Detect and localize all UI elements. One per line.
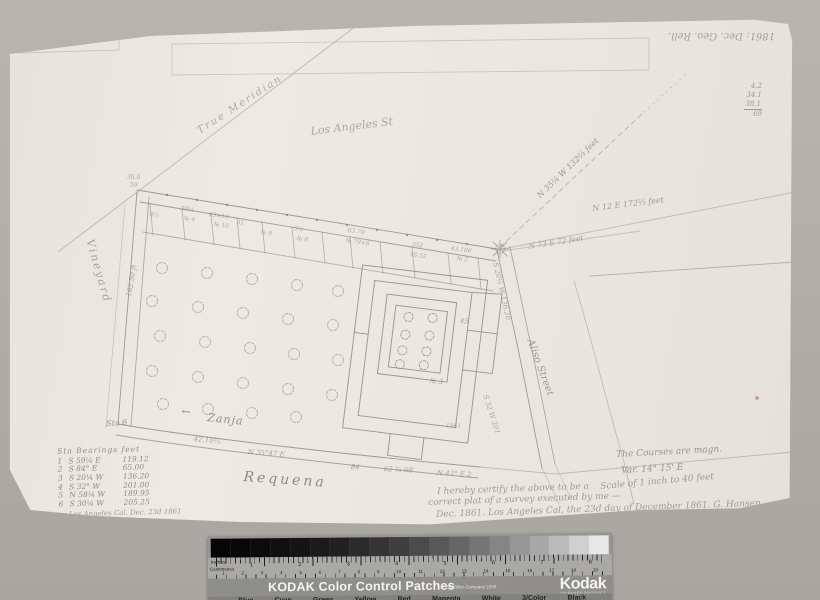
grayscale-patch	[430, 537, 450, 556]
grayscale-patch	[390, 537, 410, 556]
building-label: 1861	[446, 423, 462, 430]
photo-background: 1861: Dec. 1861: Dec. Geo. Rell. 4.2 34.…	[0, 0, 820, 600]
inches-label: Inches	[211, 560, 226, 566]
red-speck	[755, 396, 759, 400]
bearing-table-rows: 1S 59¼ E119.122S 84° E65.003S 20¼ W136.2…	[57, 454, 181, 509]
inch-number: 7	[540, 560, 543, 566]
grayscale-patch	[529, 536, 549, 555]
grayscale-patch	[450, 536, 470, 555]
grayscale-patch	[270, 538, 290, 557]
zanja-label: Zanja	[207, 412, 244, 427]
building-label: 45	[459, 318, 468, 326]
bearing-cell: 205.25	[123, 498, 161, 508]
grayscale-patch	[589, 535, 609, 554]
kodak-color-strip: Inches 12345678 123456789101112131415161…	[208, 533, 613, 600]
bearing-row: 6S 30¼ W205.25	[58, 497, 181, 509]
sum-line: 69	[728, 110, 762, 119]
inch-number: 6	[492, 560, 495, 566]
zanja-arrow: ←	[181, 406, 191, 418]
inch-number: 5	[443, 561, 446, 567]
color-patch-label: Yellow	[355, 596, 377, 600]
sum-line: 38.1	[744, 100, 762, 110]
corner-note: 59	[130, 183, 138, 189]
lot-label: 5¼	[293, 226, 303, 233]
corner-station-mark	[491, 240, 509, 258]
sum-line: 4.2	[728, 82, 762, 91]
bearing-table: Sta Bearings feet 1S 59¼ E119.122S 84° E…	[57, 444, 182, 519]
building-label: № 3	[429, 378, 443, 386]
grayscale-patch	[330, 538, 350, 557]
centimetres-label: Centimetres	[210, 567, 234, 572]
grayscale-patch	[370, 537, 390, 556]
grayscale-patch	[509, 536, 529, 555]
date-note-top-left: 1861: Dec.	[40, 27, 116, 42]
color-patch-label: Black	[567, 594, 586, 600]
kodak-copyright: © The Tiffen Company 2000	[440, 584, 496, 589]
grayscale-patch	[549, 536, 569, 555]
grayscale-patch	[310, 538, 330, 557]
inch-number: 4	[395, 561, 398, 567]
grayscale-patch	[350, 537, 370, 556]
lot-label: 31	[236, 220, 244, 227]
color-patch-label: Magenta	[432, 596, 461, 600]
inch-number: 2	[298, 562, 301, 568]
inch-number: 3	[347, 562, 350, 568]
lot-label: 8½	[149, 212, 159, 219]
color-patch-label: Red	[398, 596, 411, 600]
pencil-sum-column: 4.2 34.1 38.1 69	[728, 82, 762, 119]
courtyard-trees	[395, 310, 438, 373]
grayscale-patch	[231, 538, 251, 557]
map-sheet: 1861: Dec. 1861: Dec. Geo. Rell. 4.2 34.…	[0, 0, 820, 600]
grayscale-patch	[569, 535, 589, 554]
grayscale-patch	[410, 537, 430, 556]
bearing-cell: S 30¼ W	[69, 499, 123, 509]
orchard-trees	[147, 263, 344, 423]
adobe-building-plan	[340, 265, 504, 467]
color-patch-label: White	[482, 595, 501, 600]
corner-note: 36.6	[127, 175, 140, 181]
date-note-top-right-inverted: 1861: Dec. Geo. Rell.	[668, 30, 775, 40]
grayscale-patch	[211, 539, 231, 558]
inch-number: 1	[250, 562, 253, 568]
color-patch-label: 3/Color	[522, 595, 546, 600]
sum-line: 34.1	[728, 91, 762, 100]
grayscale-patch	[489, 536, 509, 555]
grayscale-patch	[290, 538, 310, 557]
kodak-title: KODAK Color Control Patches	[268, 579, 455, 595]
bottom-measure: 84	[351, 464, 360, 471]
grayscale-patch	[469, 536, 489, 555]
bearing-cell: 6	[58, 500, 69, 509]
station-6-label: Sta 6	[106, 419, 127, 428]
grayscale-patch	[250, 538, 270, 557]
inch-number: 8	[589, 559, 592, 565]
